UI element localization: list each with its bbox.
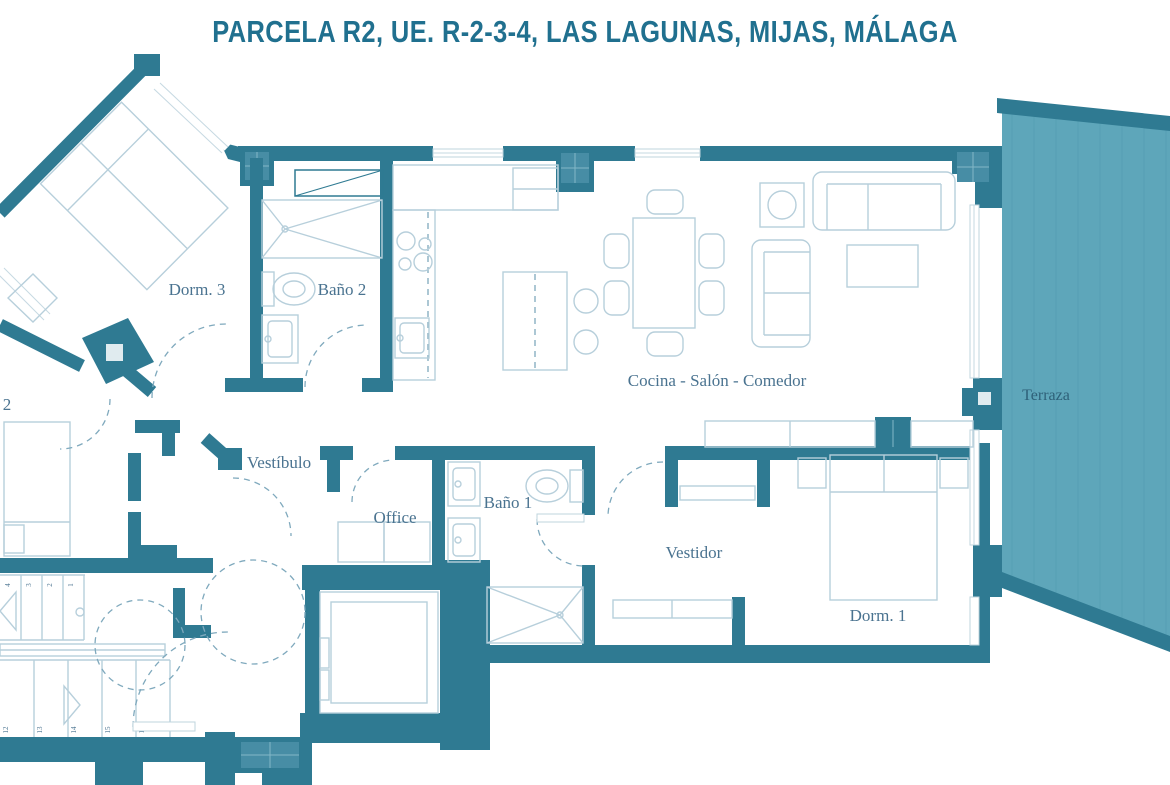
room-label-vestidor: Vestidor	[666, 543, 723, 562]
room-label-office: Office	[373, 508, 416, 527]
step-number: 15	[104, 726, 112, 734]
kitchen-island	[503, 272, 598, 370]
double-bed-dorm1-icon	[798, 455, 968, 600]
floor-plan-drawing: Terraza	[0, 0, 1170, 785]
room-label-vestibulo: Vestíbulo	[247, 453, 311, 472]
room-label-terraza: Terraza	[1022, 387, 1070, 404]
bed-dorm2-icon	[4, 422, 70, 556]
elevator	[320, 592, 438, 713]
terrace-area: Terraza	[997, 98, 1170, 660]
room-label-dorm2: 2	[3, 395, 12, 414]
room-label-cocina-salon-comedor: Cocina - Salón - Comedor	[628, 371, 807, 390]
step-number: 2	[46, 583, 54, 587]
step-number: 1	[67, 583, 75, 587]
bathroom2-fixtures	[262, 170, 383, 363]
stairs: 4 3 2 1 12 13 14 15 16	[0, 575, 170, 737]
floor-plan-page: PARCELA R2, UE. R-2-3-4, LAS LAGUNAS, MI…	[0, 0, 1170, 785]
room-label-bano1: Baño 1	[484, 493, 533, 512]
office-cabinets	[338, 522, 430, 562]
walls	[0, 54, 1002, 785]
step-number: 4	[4, 583, 12, 587]
room-label-bano2: Baño 2	[318, 280, 367, 299]
dining-table-icon	[604, 190, 724, 356]
living-room-furniture	[752, 172, 955, 347]
step-number: 3	[25, 583, 33, 587]
step-number: 13	[36, 726, 44, 734]
room-label-dorm1: Dorm. 1	[850, 606, 907, 625]
room-label-dorm3: Dorm. 3	[169, 280, 226, 299]
step-number: 12	[2, 726, 10, 734]
step-number: 14	[70, 726, 78, 734]
